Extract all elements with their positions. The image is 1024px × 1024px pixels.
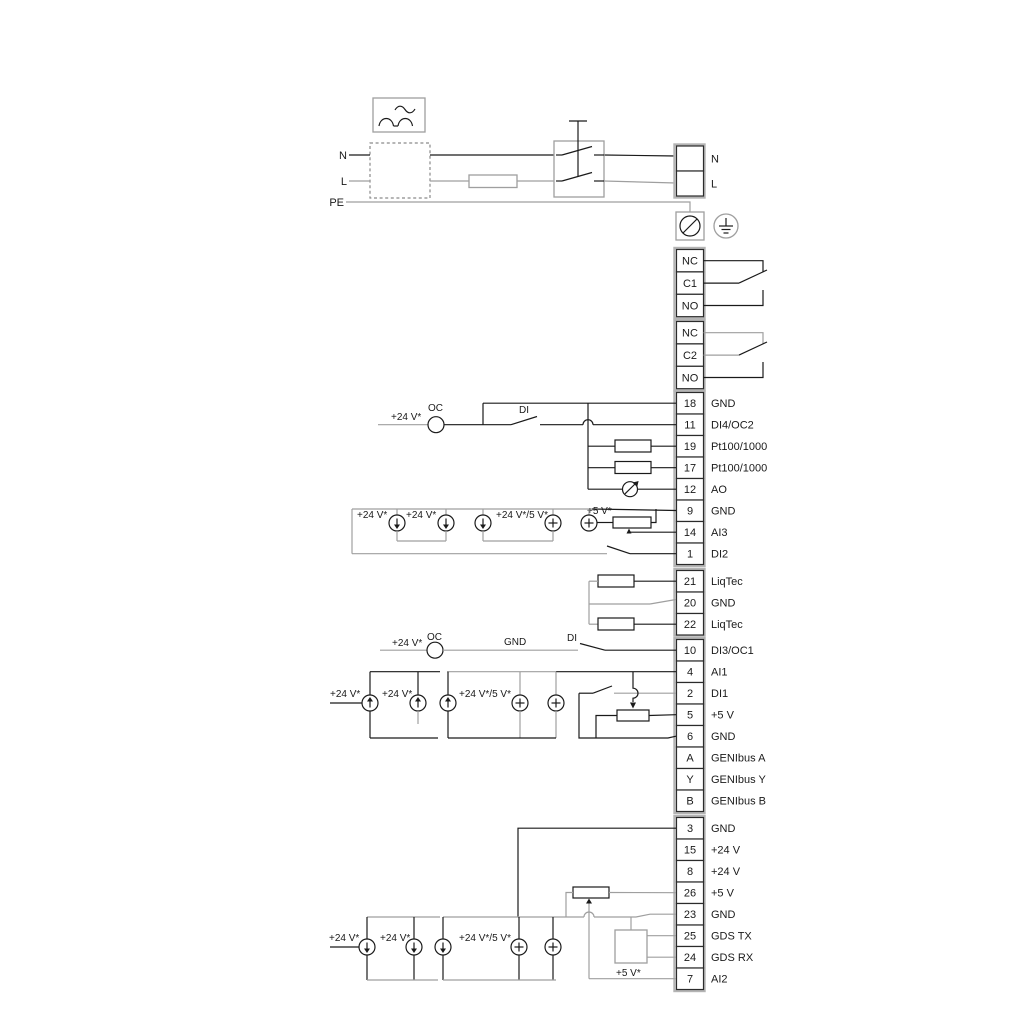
terminal-label: +24 V xyxy=(711,866,741,878)
terminal-number: 19 xyxy=(684,441,696,453)
supply-label: +24 V* xyxy=(380,933,410,944)
terminal-label: LiqTec xyxy=(711,619,743,631)
terminal-label: GND xyxy=(711,598,736,610)
terminal-label: GND xyxy=(711,506,736,518)
wiring-diagram: N L PE N xyxy=(0,0,1024,1024)
protective-earth-icon xyxy=(714,214,738,238)
resistor-symbol xyxy=(615,462,651,474)
terminal-label: L xyxy=(711,179,717,191)
terminal-label: AO xyxy=(711,484,727,496)
terminal-label: GND xyxy=(711,823,736,835)
terminal-label: GDS RX xyxy=(711,952,754,964)
terminal-label: DI2 xyxy=(711,549,728,561)
terminal-label: DI4/OC2 xyxy=(711,420,754,432)
terminal-number: 10 xyxy=(684,645,696,657)
oc-label: OC xyxy=(427,632,442,643)
terminal-label: GDS TX xyxy=(711,931,752,943)
di-label: DI xyxy=(519,405,529,416)
supply-label: +24 V*/5 V* xyxy=(459,689,511,700)
terminal-number: 24 xyxy=(684,952,696,964)
fuse-symbol xyxy=(469,175,517,188)
terminal-number: NC xyxy=(682,328,698,340)
terminal-number: A xyxy=(686,753,694,765)
terminal-number: C1 xyxy=(683,278,697,290)
resistor-symbol xyxy=(598,575,634,587)
mains-l-label: L xyxy=(341,176,347,188)
terminal-number: 9 xyxy=(687,506,693,518)
terminal-number: 21 xyxy=(684,576,696,588)
terminal-label: LiqTec xyxy=(711,576,743,588)
supply-label: +24 V* xyxy=(382,689,412,700)
terminal-number: 25 xyxy=(684,931,696,943)
terminal-number: 5 xyxy=(687,710,693,722)
terminal-number: 4 xyxy=(687,667,693,679)
terminal-number: 7 xyxy=(687,974,693,986)
terminal-label: Pt100/1000 xyxy=(711,441,767,453)
terminal-number: Y xyxy=(686,774,694,786)
terminal-number: 20 xyxy=(684,598,696,610)
terminal-label: Pt100/1000 xyxy=(711,463,767,475)
terminal-label: AI2 xyxy=(711,974,728,986)
resistor-symbol xyxy=(615,440,651,452)
terminal-number: 26 xyxy=(684,888,696,900)
supply-label: +24 V*/5 V* xyxy=(459,933,511,944)
terminal-label: GENIbus A xyxy=(711,753,766,765)
terminal-label: GND xyxy=(711,398,736,410)
terminal-label: AI3 xyxy=(711,527,728,539)
terminal-label: +24 V xyxy=(711,845,741,857)
potentiometer-symbol xyxy=(573,887,609,898)
gnd-label: GND xyxy=(504,637,526,648)
terminal-number: 15 xyxy=(684,845,696,857)
terminal-number: NO xyxy=(682,300,699,312)
terminal-number: NC xyxy=(682,256,698,268)
terminal-label: GND xyxy=(711,909,736,921)
supply-label: +24 V* xyxy=(329,933,359,944)
potentiometer-symbol xyxy=(617,710,649,721)
terminal-number: 8 xyxy=(687,866,693,878)
supply-waveform-box xyxy=(373,98,425,132)
terminal-number: 3 xyxy=(687,823,693,835)
terminal-number: C2 xyxy=(683,350,697,362)
supply-label: +5 V* xyxy=(616,968,641,979)
terminal-label: GENIbus Y xyxy=(711,774,766,786)
resistor-symbol xyxy=(598,618,634,630)
terminal-number: 17 xyxy=(684,463,696,475)
mains-pe-label: PE xyxy=(329,197,344,209)
terminal-label: +5 V xyxy=(711,888,735,900)
terminal-number: 14 xyxy=(684,527,696,539)
supply-label: +24 V* xyxy=(392,638,422,649)
oc-label: OC xyxy=(428,403,443,414)
terminal-label: DI1 xyxy=(711,688,728,700)
open-collector-icon xyxy=(428,417,444,433)
terminal-label: N xyxy=(711,154,719,166)
terminal-label: +5 V xyxy=(711,710,735,722)
terminal-number: NO xyxy=(682,372,699,384)
supply-label: +24 V* xyxy=(357,510,387,521)
supply-label: +24 V*/5 V* xyxy=(496,510,548,521)
terminal-number: 18 xyxy=(684,398,696,410)
analog-output-meter-icon xyxy=(623,481,639,497)
supply-label: +24 V* xyxy=(406,510,436,521)
potentiometer-symbol xyxy=(613,517,651,528)
supply-label: +24 V* xyxy=(330,689,360,700)
supply-label: +24 V* xyxy=(391,412,421,423)
terminal-label: DI3/OC1 xyxy=(711,645,754,657)
terminal-number: 11 xyxy=(684,420,695,432)
terminal-number: 23 xyxy=(684,909,696,921)
mains-n-label: N xyxy=(339,150,347,162)
open-collector-icon xyxy=(427,642,443,658)
wiring-diagram-page: N L PE N xyxy=(0,0,1024,1024)
terminal-cell xyxy=(677,171,704,196)
terminal-label: AI1 xyxy=(711,667,728,679)
terminal-number: 12 xyxy=(684,484,696,496)
terminal-number: B xyxy=(686,796,693,808)
terminal-number: 2 xyxy=(687,688,693,700)
terminal-cell xyxy=(677,146,704,171)
di-label: DI xyxy=(567,633,577,644)
pe-screw-terminal-icon xyxy=(676,212,704,240)
terminal-number: 22 xyxy=(684,619,696,631)
terminal-label: GENIbus B xyxy=(711,796,766,808)
terminal-number: 6 xyxy=(687,731,693,743)
terminal-label: GND xyxy=(711,731,736,743)
gds-sensor-box xyxy=(615,930,647,963)
terminal-number: 1 xyxy=(687,549,693,561)
